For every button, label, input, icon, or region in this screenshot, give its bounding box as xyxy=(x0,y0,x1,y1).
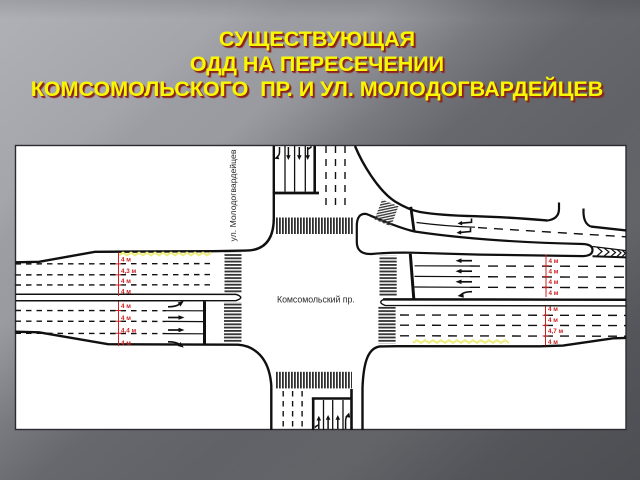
svg-text:4 м: 4 м xyxy=(121,278,131,285)
svg-text:4 м: 4 м xyxy=(121,257,131,264)
svg-text:4,3 м: 4,3 м xyxy=(121,268,137,275)
svg-text:4 м: 4 м xyxy=(549,290,559,297)
svg-text:4 м: 4 м xyxy=(548,317,558,324)
svg-text:4 м: 4 м xyxy=(121,315,131,322)
svg-text:4 м: 4 м xyxy=(549,269,559,276)
svg-text:4 м: 4 м xyxy=(549,258,559,265)
svg-text:4,7 м: 4,7 м xyxy=(548,328,564,335)
svg-text:4,4 м: 4,4 м xyxy=(121,328,137,335)
svg-text:4 м: 4 м xyxy=(121,288,131,295)
svg-text:4 м: 4 м xyxy=(121,340,131,347)
svg-text:4 м: 4 м xyxy=(549,279,559,286)
svg-text:4 м: 4 м xyxy=(548,339,558,346)
svg-text:Комсомольский пр.: Комсомольский пр. xyxy=(277,295,355,305)
svg-text:ул. Молодогвардейцев: ул. Молодогвардейцев xyxy=(228,149,238,241)
svg-text:4 м: 4 м xyxy=(548,306,558,313)
svg-text:4 м: 4 м xyxy=(121,303,131,310)
